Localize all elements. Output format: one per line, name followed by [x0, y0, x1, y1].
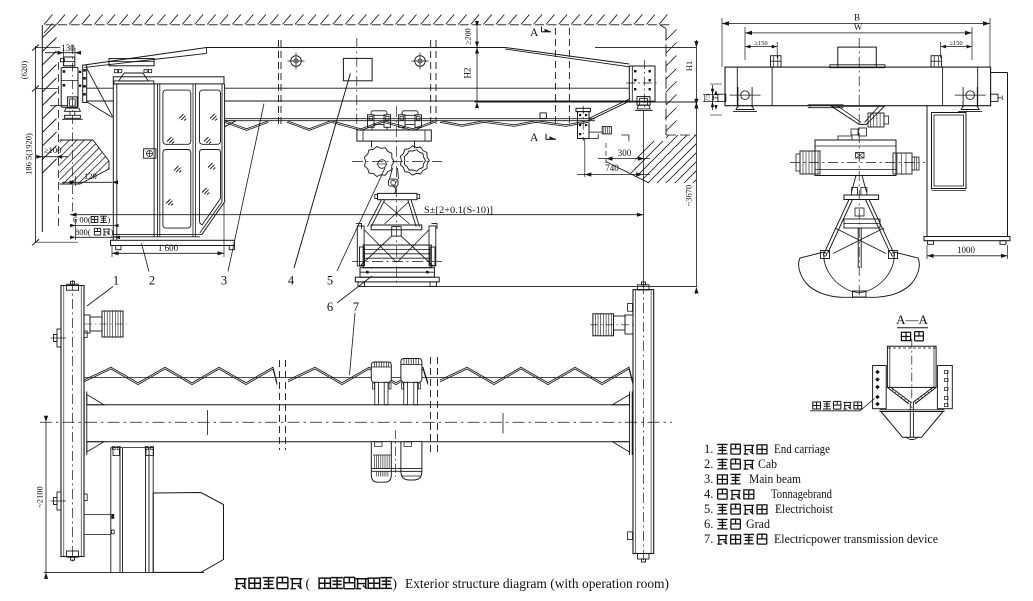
svg-text:120: 120	[84, 171, 97, 181]
svg-text:S±[2+0.1(S-10)]: S±[2+0.1(S-10)]	[424, 205, 493, 216]
svg-text:End carriage: End carriage	[774, 442, 830, 456]
svg-text:~3670: ~3670	[684, 185, 694, 207]
svg-text:A: A	[530, 132, 539, 144]
svg-text:Cab: Cab	[758, 457, 777, 471]
svg-text:740: 740	[605, 163, 619, 173]
svg-text:H2: H2	[463, 68, 473, 79]
svg-text:5: 5	[327, 274, 333, 288]
svg-text:3: 3	[221, 274, 227, 288]
svg-text:Grad: Grad	[746, 517, 771, 531]
svg-text:Electrichoist: Electrichoist	[775, 502, 833, 516]
svg-text:≥200: ≥200	[464, 28, 473, 44]
svg-text:≥150: ≥150	[949, 40, 962, 47]
svg-text:Tonnagebrand: Tonnagebrand	[771, 487, 833, 501]
svg-text:6: 6	[327, 300, 333, 314]
svg-text:186 5(1920): 186 5(1920)	[24, 133, 34, 175]
svg-text:H1: H1	[684, 61, 694, 71]
svg-text:): )	[111, 227, 114, 237]
svg-text:5.: 5.	[704, 502, 713, 516]
svg-text:≥150: ≥150	[754, 40, 767, 47]
svg-text:1.: 1.	[704, 442, 713, 456]
svg-text:1000: 1000	[957, 245, 976, 255]
svg-text:7: 7	[353, 300, 359, 314]
svg-text:W: W	[854, 22, 863, 32]
svg-text:A—A: A—A	[896, 312, 928, 327]
svg-text:3.: 3.	[704, 472, 713, 486]
svg-text:Electricpower transmission dev: Electricpower transmission device	[774, 532, 938, 546]
svg-text:(620): (620)	[19, 61, 29, 80]
svg-text:1: 1	[113, 274, 119, 288]
svg-text:2.: 2.	[704, 457, 713, 471]
svg-text:Exterior structure diagram (wi: Exterior structure diagram (with operati…	[405, 576, 669, 592]
svg-text:75: 75	[703, 94, 712, 102]
svg-text:~2100: ~2100	[35, 486, 45, 508]
svg-text:7.: 7.	[704, 532, 713, 546]
svg-text:300: 300	[618, 148, 632, 158]
svg-text:4.: 4.	[704, 487, 713, 501]
svg-text:800(: 800(	[75, 227, 91, 237]
svg-text:4: 4	[288, 274, 295, 288]
svg-text:≥100: ≥100	[44, 145, 61, 155]
svg-text:): )	[108, 215, 111, 225]
svg-text:1 600: 1 600	[158, 243, 179, 253]
svg-text:2: 2	[149, 274, 155, 288]
svg-text:): )	[393, 576, 398, 591]
svg-text:6.: 6.	[704, 517, 713, 531]
svg-text:(: (	[306, 576, 311, 591]
svg-text:A: A	[530, 27, 539, 39]
svg-text:Main beam: Main beam	[749, 472, 801, 486]
